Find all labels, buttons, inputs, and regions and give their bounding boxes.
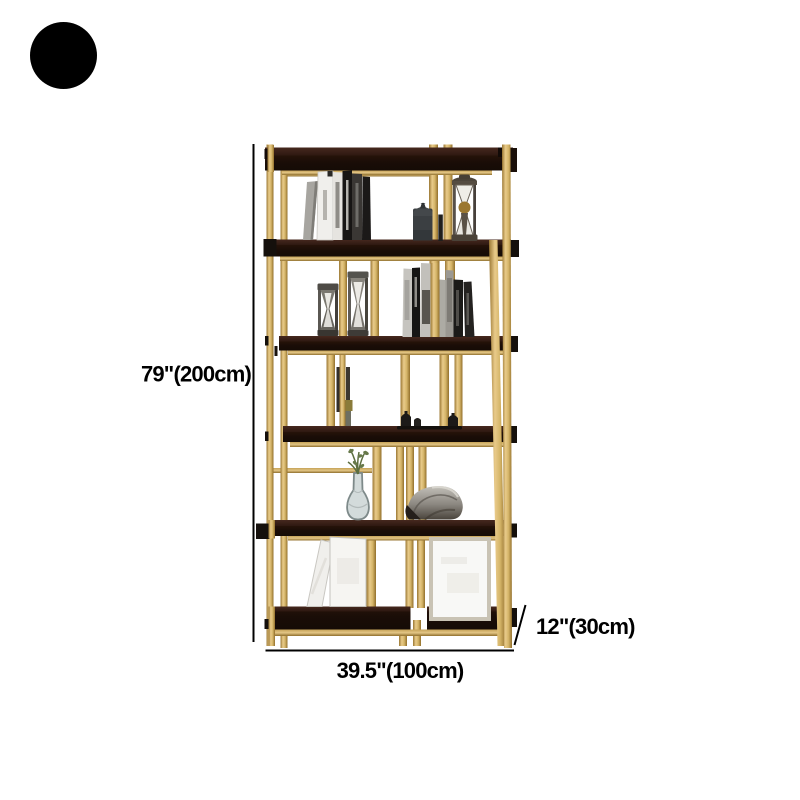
svg-text:12"(30cm): 12"(30cm) xyxy=(536,614,635,639)
svg-text:79"(200cm): 79"(200cm) xyxy=(141,362,252,387)
svg-text:39.5"(100cm): 39.5"(100cm) xyxy=(337,658,464,683)
